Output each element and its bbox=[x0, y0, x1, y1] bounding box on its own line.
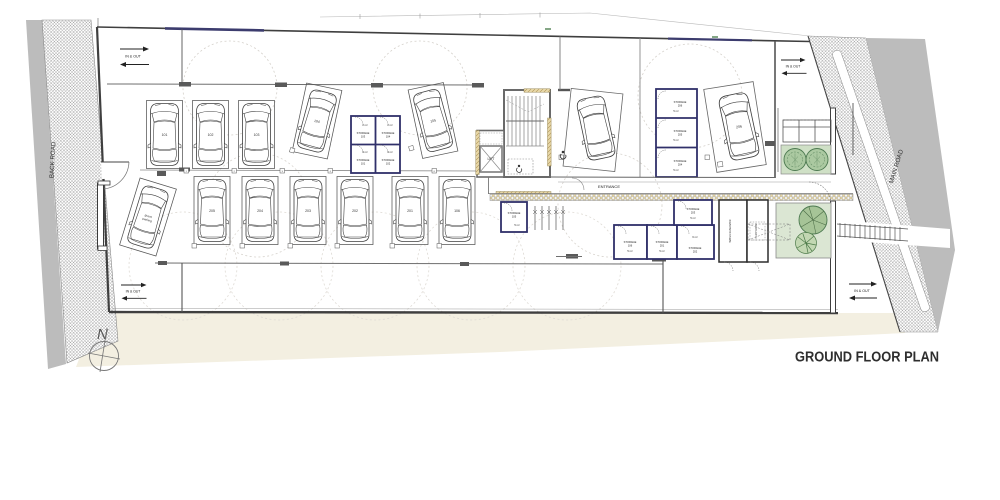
svg-text:5 m²: 5 m² bbox=[659, 249, 664, 253]
svg-text:STORAGE: STORAGE bbox=[357, 158, 370, 162]
svg-text:STORAGE: STORAGE bbox=[674, 159, 687, 163]
svg-text:204: 204 bbox=[257, 209, 263, 213]
svg-text:IN & OUT: IN & OUT bbox=[125, 55, 141, 59]
svg-text:5 m²: 5 m² bbox=[514, 223, 519, 227]
svg-text:IN & OUT: IN & OUT bbox=[786, 65, 801, 69]
svg-text:WATER RESERVOIR: WATER RESERVOIR bbox=[729, 219, 732, 242]
svg-text:STORAGE: STORAGE bbox=[624, 240, 637, 244]
svg-text:STORAGE: STORAGE bbox=[656, 240, 669, 244]
svg-text:103: 103 bbox=[254, 133, 260, 137]
svg-text:104: 104 bbox=[386, 135, 391, 139]
svg-text:102: 102 bbox=[386, 162, 391, 166]
svg-text:205: 205 bbox=[678, 133, 683, 137]
svg-text:2 m²: 2 m² bbox=[362, 123, 367, 127]
svg-text:GROUND FLOOR PLAN: GROUND FLOOR PLAN bbox=[795, 349, 939, 366]
svg-text:202: 202 bbox=[693, 250, 698, 254]
svg-text:203: 203 bbox=[305, 209, 311, 213]
svg-text:5 m²: 5 m² bbox=[673, 168, 678, 172]
svg-text:2 m²: 2 m² bbox=[387, 123, 392, 127]
svg-text:205: 205 bbox=[209, 209, 215, 213]
svg-text:STORAGE: STORAGE bbox=[674, 100, 687, 104]
svg-text:IN & OUT: IN & OUT bbox=[126, 290, 141, 294]
svg-text:5 m²: 5 m² bbox=[627, 249, 632, 253]
svg-text:101: 101 bbox=[162, 133, 168, 137]
svg-text:206: 206 bbox=[678, 104, 683, 108]
svg-text:201: 201 bbox=[407, 209, 413, 213]
svg-text:105: 105 bbox=[512, 215, 517, 219]
svg-text:5 m²: 5 m² bbox=[673, 138, 678, 142]
svg-text:STORAGE: STORAGE bbox=[508, 211, 521, 215]
svg-text:106: 106 bbox=[628, 244, 633, 248]
svg-text:LIFT: LIFT bbox=[488, 157, 495, 161]
svg-text:3 m²: 3 m² bbox=[387, 150, 392, 154]
svg-text:204: 204 bbox=[678, 163, 683, 167]
svg-text:5 m²: 5 m² bbox=[673, 109, 678, 113]
svg-text:STORAGE: STORAGE bbox=[689, 246, 702, 250]
svg-text:203: 203 bbox=[691, 211, 696, 215]
svg-text:STORAGE: STORAGE bbox=[382, 158, 395, 162]
svg-text:PUMP ROOM: PUMP ROOM bbox=[755, 224, 758, 239]
svg-text:IN & OUT: IN & OUT bbox=[854, 289, 870, 293]
svg-text:STORAGE: STORAGE bbox=[382, 131, 395, 135]
svg-text:3 m²: 3 m² bbox=[362, 150, 367, 154]
svg-text:ENTRANCE: ENTRANCE bbox=[598, 184, 620, 189]
svg-text:201: 201 bbox=[660, 244, 665, 248]
svg-text:103: 103 bbox=[361, 135, 366, 139]
svg-text:106: 106 bbox=[454, 209, 460, 213]
svg-text:STORAGE: STORAGE bbox=[674, 129, 687, 133]
svg-text:STORAGE: STORAGE bbox=[357, 131, 370, 135]
svg-text:202: 202 bbox=[352, 209, 358, 213]
svg-text:6 m²: 6 m² bbox=[692, 235, 697, 239]
svg-text:101: 101 bbox=[361, 162, 366, 166]
svg-text:102: 102 bbox=[208, 133, 214, 137]
svg-text:STORAGE: STORAGE bbox=[687, 207, 700, 211]
svg-text:5 m²: 5 m² bbox=[690, 216, 695, 220]
